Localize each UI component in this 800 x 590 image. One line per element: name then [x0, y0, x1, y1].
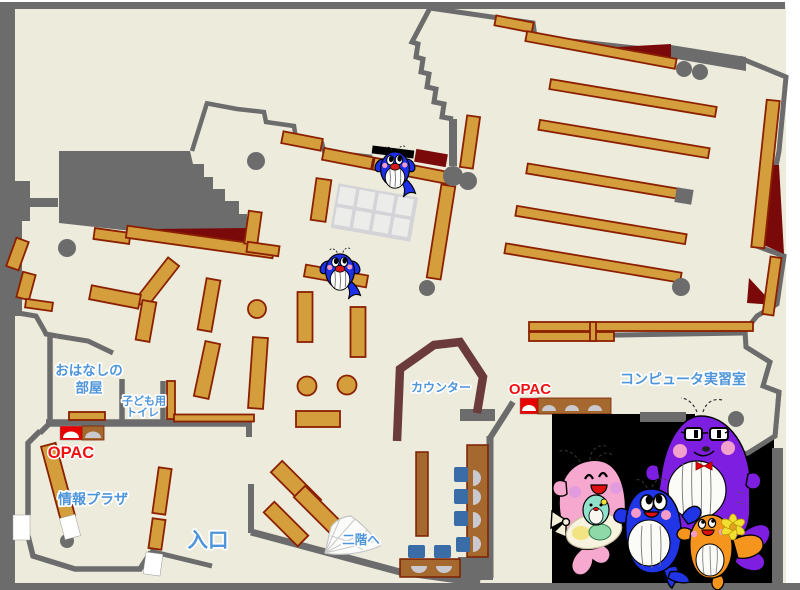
- svg-text:情報プラザ: 情報プラザ: [58, 491, 128, 507]
- svg-text:おはなしの: おはなしの: [55, 363, 123, 378]
- svg-text:入口: 入口: [188, 529, 229, 552]
- svg-text:カウンター: カウンター: [411, 381, 471, 395]
- svg-text:子ども用: 子ども用: [122, 395, 166, 408]
- svg-text:トイレ: トイレ: [126, 406, 159, 419]
- svg-text:OPAC: OPAC: [48, 444, 95, 462]
- svg-text:コンピュータ実習室: コンピュータ実習室: [620, 371, 746, 387]
- svg-text:OPAC: OPAC: [509, 381, 551, 398]
- svg-text:部屋: 部屋: [76, 380, 103, 396]
- svg-text:二階へ: 二階へ: [342, 532, 380, 547]
